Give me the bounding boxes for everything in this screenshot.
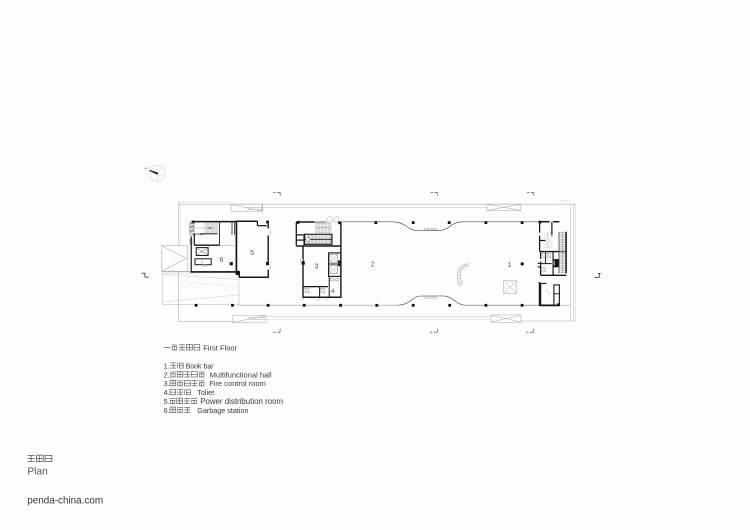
- svg-text:2.: 2.: [164, 370, 170, 379]
- svg-text:Garbage station: Garbage station: [197, 406, 248, 415]
- svg-text:3.: 3.: [164, 379, 170, 388]
- svg-text:1: 1: [508, 262, 512, 269]
- svg-text:5.: 5.: [164, 397, 170, 406]
- svg-text:5: 5: [250, 250, 254, 257]
- svg-text:2: 2: [371, 262, 375, 269]
- svg-text:6.: 6.: [164, 406, 170, 415]
- svg-text:Fire control room: Fire control room: [209, 379, 266, 388]
- svg-text:First Floor: First Floor: [203, 343, 237, 352]
- svg-text:Multifunctional hall: Multifunctional hall: [210, 370, 272, 379]
- svg-text:Plan: Plan: [27, 467, 47, 478]
- svg-text:Power distribution room: Power distribution room: [200, 397, 283, 406]
- svg-text:Toliet: Toliet: [197, 388, 214, 397]
- svg-text:3: 3: [315, 264, 319, 271]
- svg-text:4: 4: [331, 288, 335, 295]
- svg-text:6: 6: [220, 257, 224, 264]
- svg-text:penda-china.com: penda-china.com: [27, 496, 103, 507]
- svg-text:1.: 1.: [164, 361, 170, 370]
- svg-text:4.: 4.: [164, 388, 170, 397]
